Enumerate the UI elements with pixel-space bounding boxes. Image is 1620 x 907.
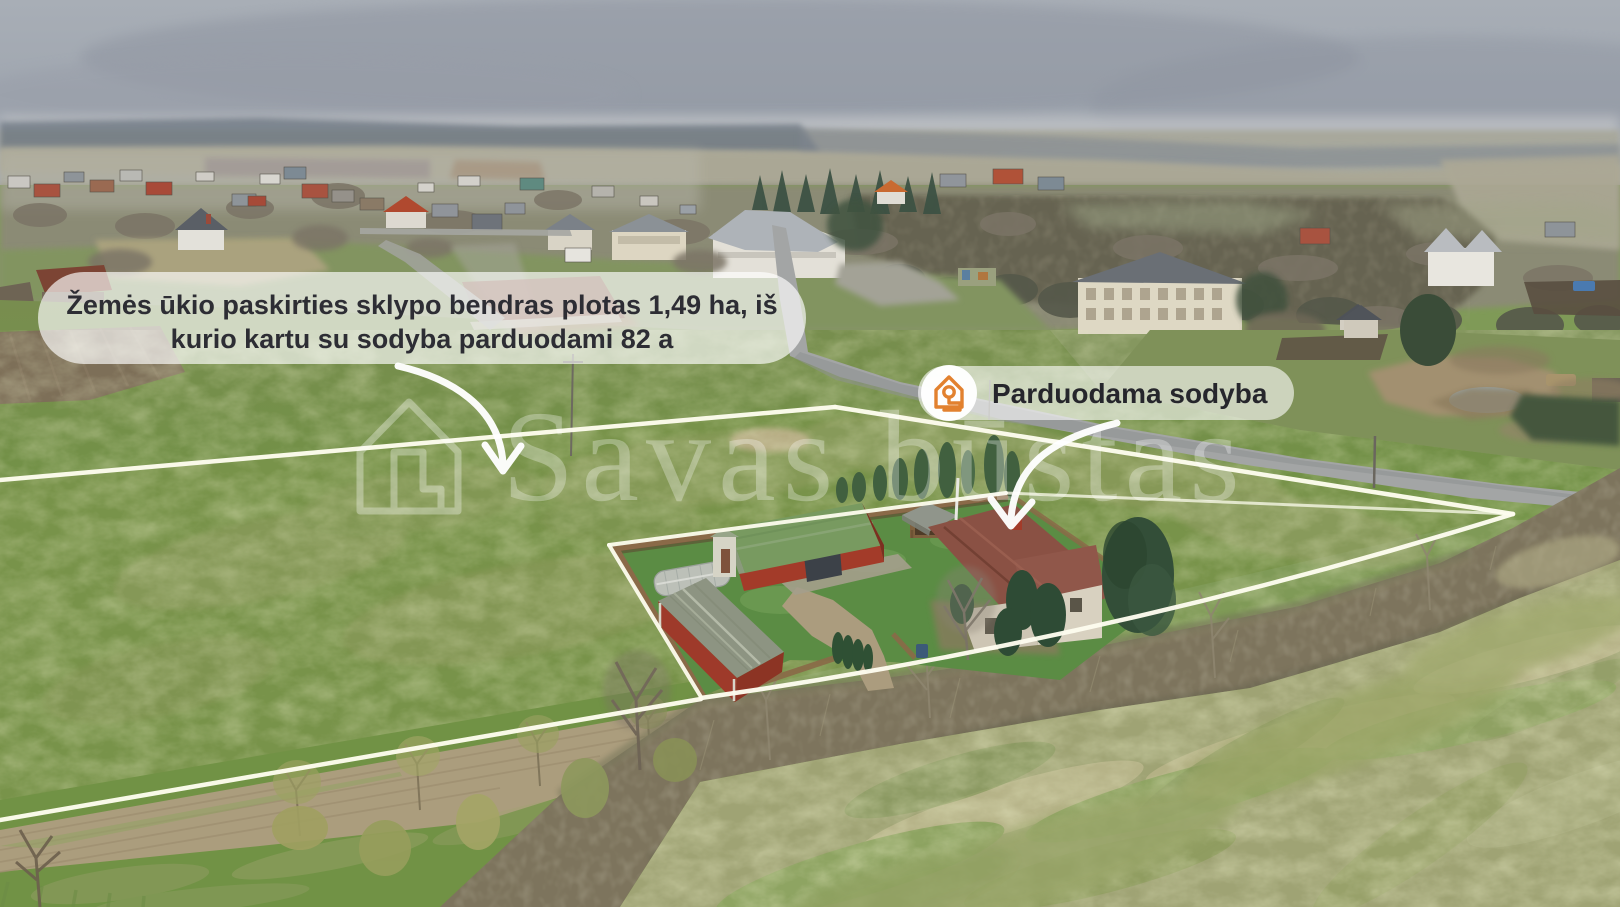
svg-text:kurio kartu su sodyba parduoda: kurio kartu su sodyba parduodami 82 a (171, 324, 675, 354)
svg-text:Parduodama sodyba: Parduodama sodyba (992, 378, 1268, 409)
svg-text:Žemės ūkio paskirties sklypo b: Žemės ūkio paskirties sklypo bendras plo… (66, 289, 777, 320)
